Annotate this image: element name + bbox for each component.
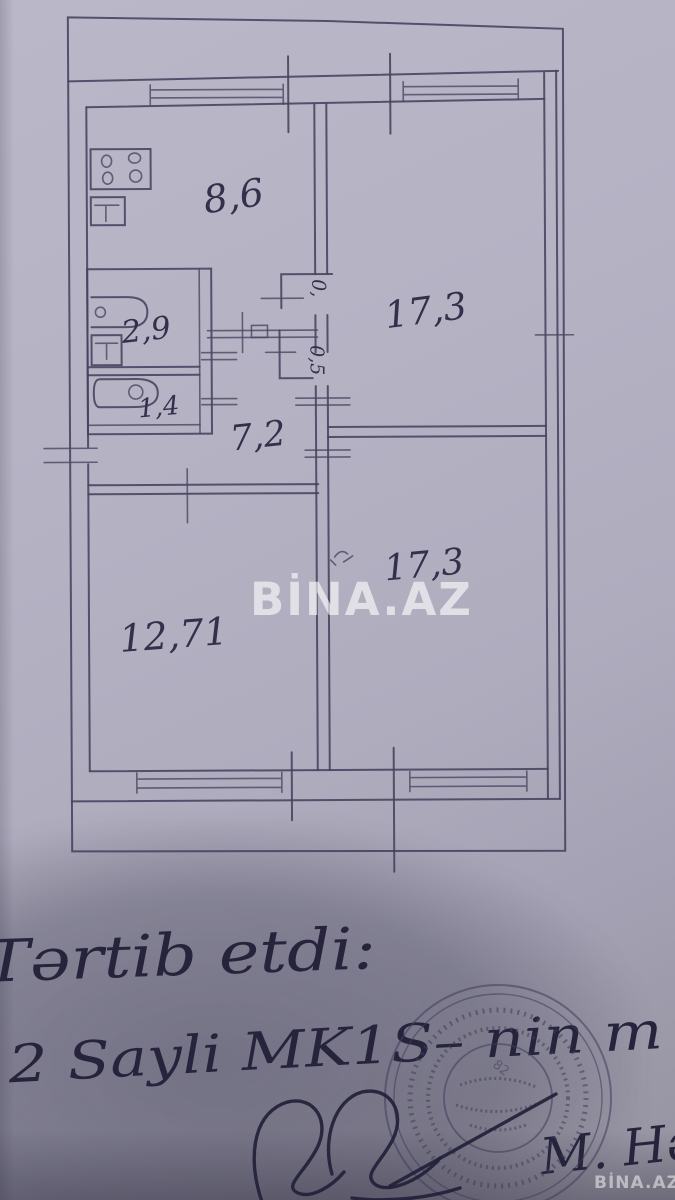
room-label-bathroom: 2,9 (119, 310, 173, 351)
ink-smudge (331, 552, 353, 566)
handwritten-line-1: Tərtib etdi: (0, 914, 377, 996)
walls (42, 71, 576, 802)
window-icon (150, 84, 283, 105)
kitchen-sink-icon (91, 197, 125, 225)
door-width-label-top: 0, (307, 279, 329, 297)
room-label-kitchen: 8,6 (200, 170, 266, 222)
plan-sheet: 8,6 2,9 1,4 7,2 17,3 17,3 12,71 0, 0,5 (42, 15, 576, 874)
room-label-top-right: 17,3 (382, 284, 469, 337)
watermark-center: BİNA.AZ (250, 573, 473, 626)
room-label-toilet: 1,4 (137, 391, 181, 425)
room-label-hallway: 7,2 (228, 414, 288, 460)
window-icon (403, 79, 518, 102)
room-label-bottom-left: 12,71 (118, 609, 230, 661)
window-icon (410, 771, 527, 792)
door-width-label-bottom: 0,5 (306, 345, 328, 375)
window-icon (137, 772, 282, 793)
scanned-floor-plan-photo: 8,6 2,9 1,4 7,2 17,3 17,3 12,71 0, 0,5 B… (0, 0, 675, 1200)
kitchen-fixtures (91, 149, 151, 225)
stove-icon (91, 149, 151, 189)
bathtub-drain-icon (95, 307, 105, 317)
floor-plan-drawing: 8,6 2,9 1,4 7,2 17,3 17,3 12,71 0, 0,5 B… (0, 0, 675, 1200)
